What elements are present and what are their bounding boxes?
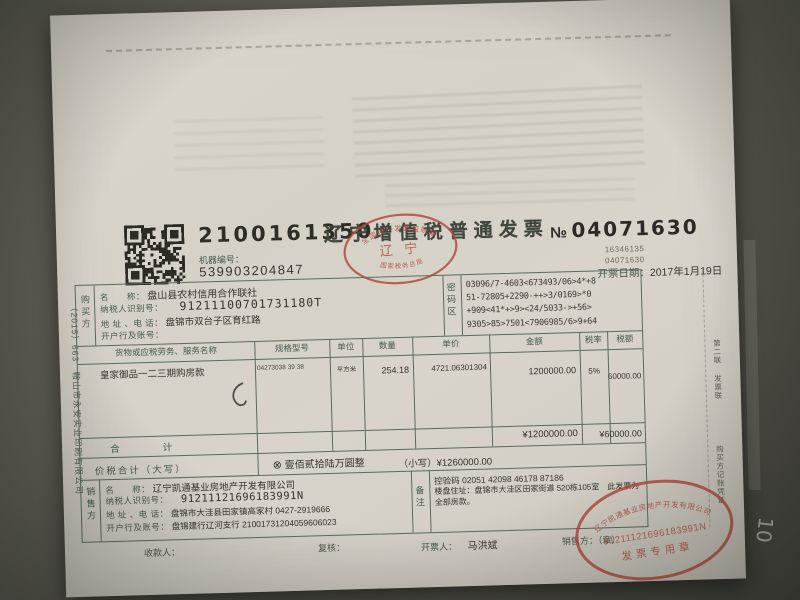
item-tax: 60000.00 (601, 371, 641, 381)
seller-section-label: 销售方 (84, 486, 98, 522)
col-header-tax: 税额 (607, 332, 642, 345)
item-price: 4721.06301304 (414, 363, 487, 374)
col-header-taxrate: 税率 (579, 333, 607, 346)
col-header-price: 单价 (412, 336, 489, 350)
payee-label: 收款人： (144, 545, 180, 559)
grand-total-label: 价税合计（大写） (95, 461, 187, 478)
item-unit: 平方米 (330, 363, 363, 374)
showthrough-text (385, 177, 636, 208)
buyer-section-label: 购买方 (79, 295, 93, 331)
divider (362, 338, 366, 450)
stamp-bottom-text: 国家税务总局 (379, 257, 425, 273)
invoice-number-line: № 04071630 (550, 215, 699, 243)
buyer-address: 盘锦市双台子区育红路 (165, 315, 260, 329)
buyer-bank-label: 开户行及账号： (101, 330, 164, 342)
item-name: 皇家御品一二三期购房款 (100, 364, 205, 381)
total-tax: ¥60000.00 (558, 428, 642, 440)
svg-text:国家税务总局: 国家税务总局 (379, 257, 425, 273)
handwritten-note: 10 (751, 516, 778, 544)
amount-in-figures: （小写）¥1260000.00 (398, 453, 492, 470)
buyer-taxid: 91211100701731180T (179, 295, 322, 313)
buyer-bank-line: 开户行及账号： (101, 329, 164, 343)
divider (257, 453, 259, 475)
seller-taxid: 91211121696183991N (181, 490, 304, 505)
copy-label: 第二联 发票联 (711, 339, 725, 439)
small-serial-1: 16346135 (605, 244, 645, 256)
col-header-unit: 单位 (329, 340, 362, 353)
divider (99, 479, 102, 541)
seller-taxid-label: 纳税人识别号： (105, 494, 168, 506)
divider (329, 339, 333, 451)
invoice-form: 购买方 密码区 销售方 备注 名 称： 盘山县农村信用合作联社 纳税人识别号： … (75, 269, 649, 543)
buyer-address-label: 地 址 、电 话： (101, 318, 164, 330)
invoice-number: 04071630 (571, 215, 699, 243)
divider (254, 341, 258, 453)
divider (579, 332, 583, 444)
seller-address-label: 地 址 、电 话： (106, 508, 169, 520)
amount-in-words: 壹佰贰拾陆万圆整 (285, 458, 365, 471)
seller-seal-stamp: 辽宁凯通基业房地产开发有限公司 91211121696183991N 发票专用章 (562, 463, 747, 600)
remarks-section-label: 备注 (413, 485, 427, 509)
pen-mark (226, 379, 251, 412)
perforation-line (106, 34, 671, 52)
drawer-label: 开票人： (421, 541, 457, 552)
issue-date-value: 2017年1月19日 (650, 265, 723, 279)
photo-background: 2100161350 机器编号： 539903204847 辽宁增值税普通发票 … (0, 0, 800, 600)
stamp-province: 辽 宁 (379, 240, 422, 259)
no-symbol: № (550, 224, 567, 241)
col-header-amount: 金额 (489, 334, 579, 349)
divider (429, 470, 432, 532)
invoice-paper: 2100161350 机器编号： 539903204847 辽宁增值税普通发票 … (50, 0, 746, 597)
item-spec: 04273038 39 38 (257, 363, 328, 373)
divider (412, 337, 416, 449)
buyer-taxid-label: 纳税人识别号： (100, 303, 163, 315)
item-amount: 1200000.00 (490, 365, 576, 377)
divider (460, 275, 463, 335)
drawer-name: 马洪斌 (467, 540, 497, 552)
divider (607, 331, 611, 443)
machine-no-value: 539903204847 (199, 262, 304, 280)
showthrough-text (352, 85, 646, 182)
col-header-qty: 数量 (362, 339, 412, 352)
anti-fraud-symbol: ⊗ (272, 459, 282, 471)
col-header-spec: 规格型号 (254, 341, 329, 355)
password-area: 03096/7-4603<673493/06>4*+8 51-72805+229… (466, 274, 639, 331)
reviewer-label: 复核： (318, 541, 345, 555)
small-serials: 16346135 04071630 (605, 244, 645, 267)
seller-bank-label: 开户行及账号： (106, 521, 169, 533)
amount-in-words-line: ⊗ 壹佰贰拾陆万圆整 (272, 454, 364, 472)
divider (94, 285, 97, 345)
password-section-label: 密码区 (445, 282, 459, 318)
item-qty: 254.18 (363, 365, 409, 376)
showthrough-text (173, 116, 325, 178)
seller-bank: 盘锦建行辽河支行 21001731204059606023 (172, 517, 337, 532)
total-label: 合 计 (110, 439, 180, 455)
qr-code (124, 224, 186, 286)
underlying-sheet-edge (743, 240, 760, 490)
drawer-line: 开票人： 马洪斌 (421, 536, 498, 553)
